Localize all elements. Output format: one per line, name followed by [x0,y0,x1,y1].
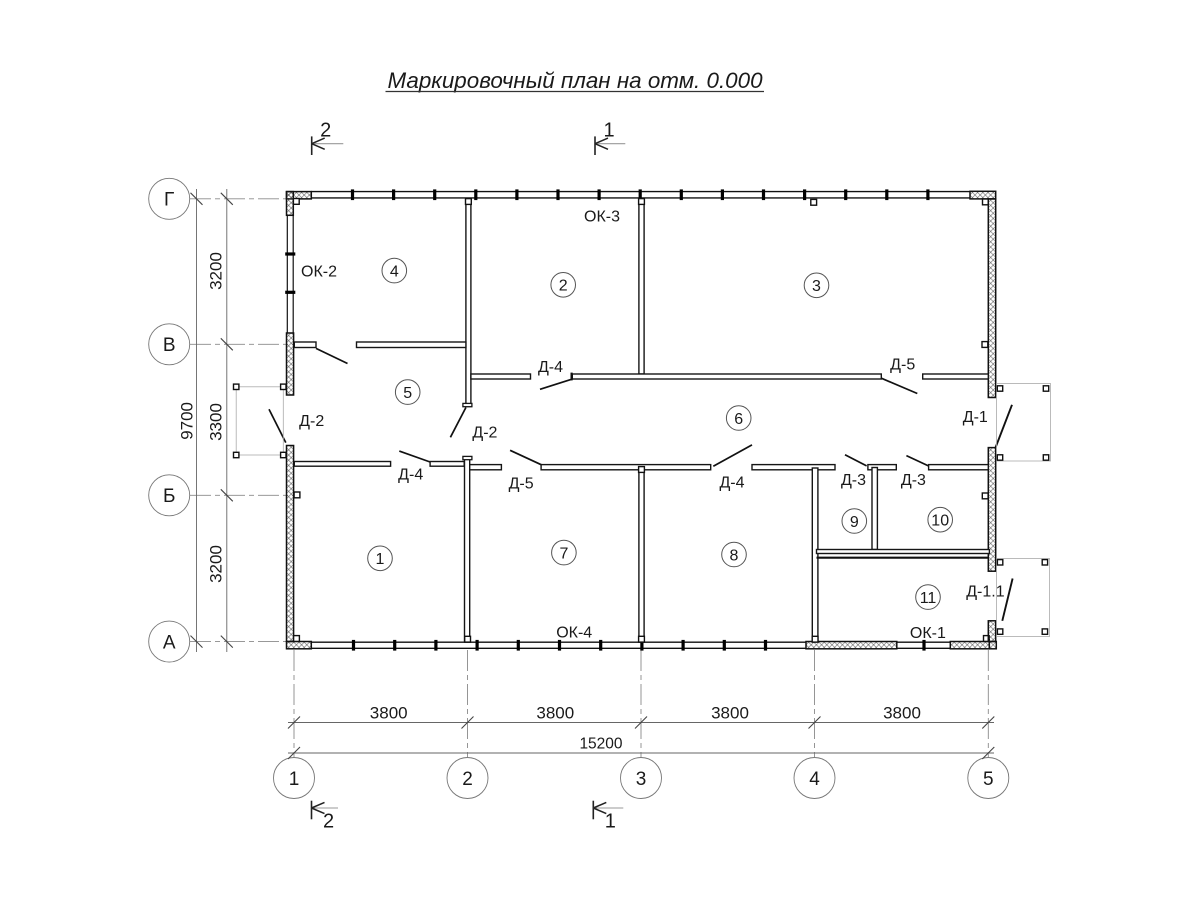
svg-text:Д-4: Д-4 [719,474,744,491]
svg-text:9: 9 [850,514,859,531]
svg-text:Д-5: Д-5 [890,356,915,373]
svg-text:3300: 3300 [207,403,226,441]
svg-text:Б: Б [163,486,175,507]
svg-text:ОК-4: ОК-4 [556,624,592,641]
svg-text:9700: 9700 [178,402,197,440]
svg-text:3200: 3200 [207,545,226,583]
svg-text:Д-1: Д-1 [963,409,988,426]
svg-text:3200: 3200 [207,252,226,290]
svg-text:Д-4: Д-4 [538,359,563,376]
svg-text:3: 3 [636,769,647,790]
svg-text:4: 4 [390,263,399,280]
svg-text:11: 11 [920,590,937,607]
svg-text:1: 1 [605,811,616,833]
svg-text:Д-2: Д-2 [299,413,324,430]
svg-text:8: 8 [730,547,739,564]
svg-text:6: 6 [734,411,743,428]
svg-text:15200: 15200 [579,736,622,753]
svg-text:Д-4: Д-4 [398,467,423,484]
svg-text:1: 1 [289,769,300,790]
svg-text:1: 1 [376,551,385,568]
svg-text:2: 2 [559,278,568,295]
svg-text:3800: 3800 [370,703,408,722]
svg-text:2: 2 [462,769,473,790]
svg-text:ОК-2: ОК-2 [301,263,337,280]
svg-text:3: 3 [812,278,821,295]
svg-text:5: 5 [403,385,412,402]
svg-text:Д-3: Д-3 [841,472,866,489]
svg-text:Г: Г [164,190,174,211]
svg-text:В: В [163,335,176,356]
svg-text:3800: 3800 [536,703,574,722]
svg-text:4: 4 [809,769,820,790]
svg-text:1: 1 [603,120,614,142]
svg-text:Маркировочный план на отм. 0.0: Маркировочный план на отм. 0.000 [387,68,763,93]
svg-text:3800: 3800 [711,703,749,722]
svg-text:Д-2: Д-2 [472,424,497,441]
svg-text:Д-5: Д-5 [509,475,534,492]
svg-text:2: 2 [323,811,334,833]
svg-text:10: 10 [931,513,949,530]
svg-text:Д-1.1: Д-1.1 [966,583,1005,600]
svg-text:5: 5 [983,769,994,790]
svg-text:Д-3: Д-3 [901,472,926,489]
svg-text:ОК-1: ОК-1 [910,625,946,642]
svg-text:7: 7 [559,545,568,562]
svg-text:2: 2 [320,120,331,142]
svg-text:3800: 3800 [883,703,921,722]
svg-text:А: А [163,632,176,653]
svg-text:ОК-3: ОК-3 [584,208,620,225]
